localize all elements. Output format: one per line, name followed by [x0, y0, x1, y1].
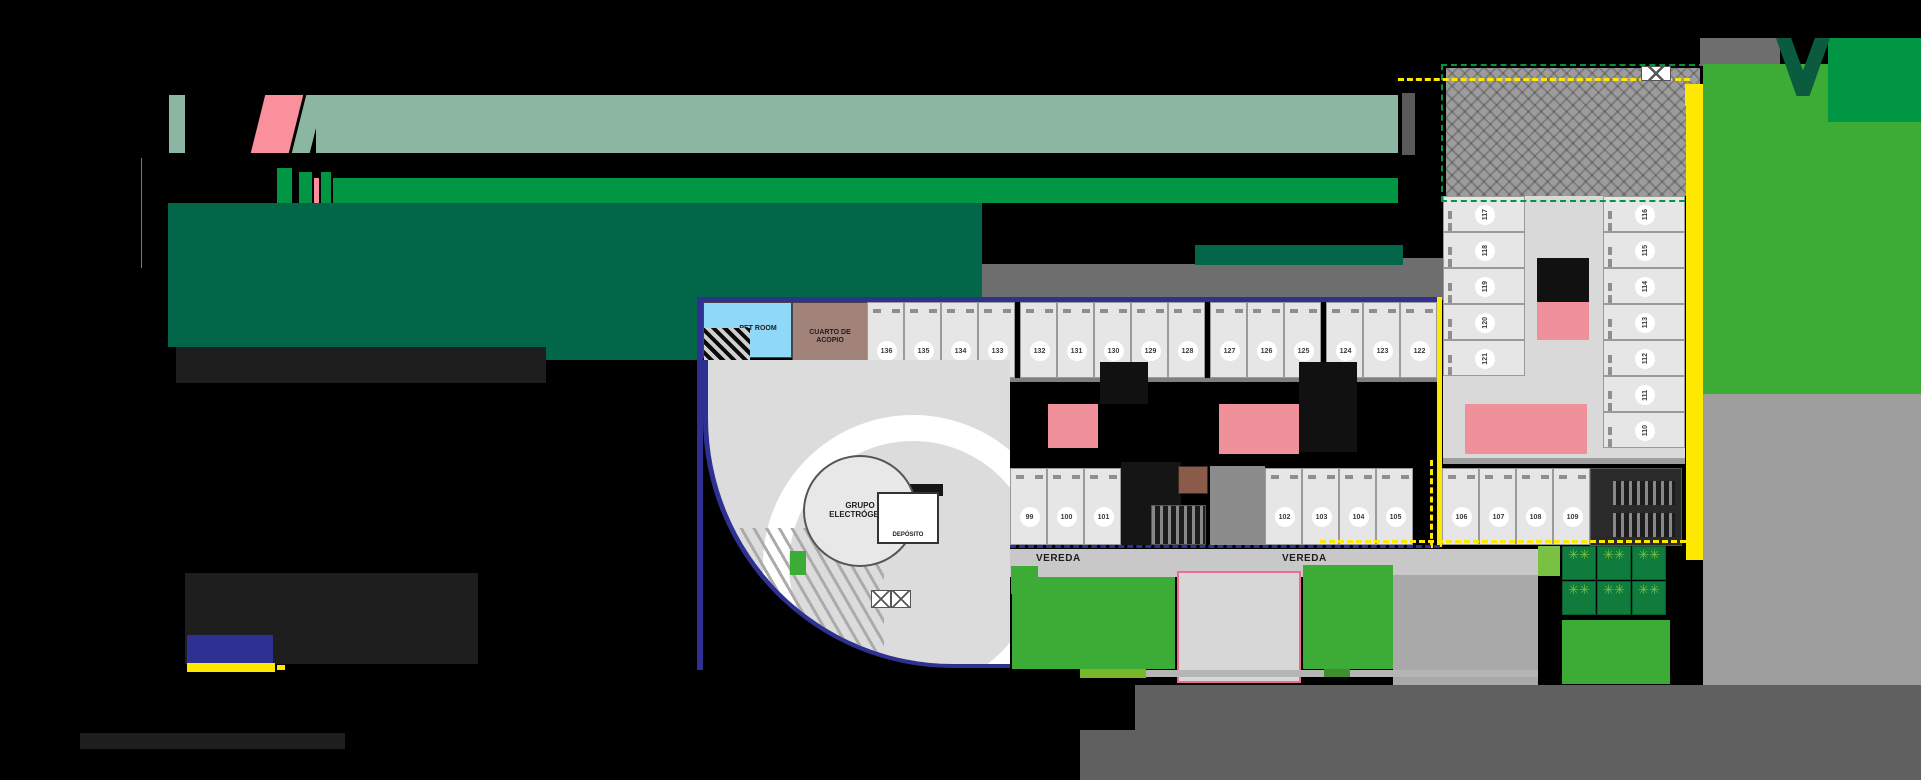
tree-icon: ✳✳: [1603, 547, 1625, 562]
pink-utility-room: [1048, 404, 1098, 448]
stall-number-circle: 105: [1386, 507, 1406, 527]
stall-number-circle: 132: [1030, 341, 1050, 361]
vent-mark: [1448, 367, 1452, 375]
lawn-strip: [1538, 546, 1560, 576]
vent-mark: [1608, 211, 1612, 219]
stall-number-circle: 118: [1475, 241, 1495, 261]
driveway-paving: [1393, 575, 1538, 685]
parking-stall: 101: [1084, 468, 1121, 545]
yellow-boundary-strip: [1686, 106, 1703, 560]
parking-stall: 107: [1479, 468, 1516, 545]
tree-icon: ✳✳: [1568, 582, 1590, 597]
curb-gray: [1350, 670, 1538, 677]
pink-utility-room: [1465, 404, 1587, 454]
vent-mark: [1608, 223, 1612, 231]
stage-divider-dashed: [1430, 460, 1433, 548]
tree-icon: ✳✳: [1638, 547, 1660, 562]
street-road: [1135, 685, 1921, 780]
stall-number: 129: [1145, 348, 1157, 355]
stall-number: 130: [1108, 348, 1120, 355]
vent-mark: [1448, 223, 1452, 231]
deposito-label: DEPÓSITO: [881, 532, 935, 538]
vent-mark: [1559, 475, 1567, 479]
vent-mark: [1541, 475, 1549, 479]
parking-stall: 131: [1057, 302, 1094, 378]
stall-number-circle: 101: [1094, 507, 1114, 527]
floor-plan-sheet: PET ROOM CUARTO DE ACOPIO 13613513413313…: [0, 0, 1921, 780]
stall-number-circle: 136: [877, 341, 897, 361]
bottom-stall-row-west: 99100101: [1010, 468, 1121, 545]
vent-mark: [1109, 475, 1117, 479]
parking-stall: 132: [1020, 302, 1057, 378]
vent-mark: [1053, 475, 1061, 479]
vent-mark: [1271, 475, 1279, 479]
parking-stall: 109: [1553, 468, 1590, 545]
stall-number-circle: 113: [1635, 313, 1655, 333]
legend-underline-nub: [277, 665, 285, 670]
stall-number: 133: [992, 348, 1004, 355]
stall-number: 111: [1642, 390, 1649, 401]
tree-planter: ✳✳: [1597, 581, 1631, 615]
stall-number-circle: 131: [1067, 341, 1087, 361]
curb-green: [1324, 669, 1350, 677]
vent-mark: [1448, 355, 1452, 363]
ramp-yard: GRUPO ELECTRÓGENO DEPÓSITO: [703, 360, 1010, 668]
stair-core: [1100, 362, 1148, 404]
stall-number: 113: [1642, 317, 1649, 328]
stall-number: 106: [1456, 514, 1468, 521]
vent-mark: [1364, 475, 1372, 479]
vent-mark: [1608, 259, 1612, 267]
stair-core: [1299, 362, 1357, 452]
vent-mark: [1448, 247, 1452, 255]
vent-mark: [1072, 475, 1080, 479]
stall-number-circle: 122: [1410, 341, 1430, 361]
vent-mark: [1485, 475, 1493, 479]
vent-mark: [1448, 319, 1452, 327]
parking-stall: 100: [1047, 468, 1084, 545]
banner-sage-band: [316, 95, 1398, 153]
vent-mark: [947, 309, 955, 313]
stall-number-circle: 130: [1104, 341, 1124, 361]
stall-number-circle: 128: [1178, 341, 1198, 361]
stall-number: 123: [1377, 348, 1389, 355]
vent-mark: [1369, 309, 1377, 313]
stall-number-circle: 135: [914, 341, 934, 361]
vent-mark: [966, 309, 974, 313]
vent-mark: [929, 309, 937, 313]
vent-mark: [1119, 309, 1127, 313]
vent-mark: [1003, 309, 1011, 313]
vent-mark: [1448, 211, 1452, 219]
stall-number: 110: [1642, 425, 1649, 436]
vent-mark: [1290, 475, 1298, 479]
stall-number-circle: 123: [1373, 341, 1393, 361]
stall-number-circle: 104: [1349, 507, 1369, 527]
vereda-label-east: VEREDA: [1282, 553, 1327, 564]
vent-mark: [1345, 475, 1353, 479]
vereda-label-west: VEREDA: [1036, 553, 1081, 564]
logo-mark-bar: [169, 95, 185, 153]
vent-mark: [984, 309, 992, 313]
vent-mark: [1608, 283, 1612, 291]
title-dark-green-panel: [168, 203, 982, 299]
tree-planter-grid: ✳✳✳✳✳✳✳✳✳✳✳✳: [1562, 546, 1666, 615]
parking-stall: 112: [1603, 340, 1685, 376]
tree-icon: ✳✳: [1603, 582, 1625, 597]
stall-number-circle: 106: [1452, 507, 1472, 527]
stall-number-circle: 125: [1294, 341, 1314, 361]
neighbor-wall-band: [1700, 38, 1780, 66]
right-block-east-column: 116115114113112111110: [1603, 196, 1685, 448]
stall-number-circle: 102: [1275, 507, 1295, 527]
property-line-yellow: [1320, 540, 1686, 543]
property-line-navy: [1010, 545, 1440, 548]
vent-mark: [1608, 439, 1612, 447]
stall-number: 112: [1642, 353, 1649, 364]
parking-stall: 103: [1302, 468, 1339, 545]
stall-number-circle: 112: [1635, 349, 1655, 369]
pink-utility-room: [1219, 404, 1299, 454]
stall-number-circle: 117: [1475, 205, 1495, 225]
vent-mark: [1137, 309, 1145, 313]
stall-number-circle: 121: [1475, 349, 1495, 369]
vent-mark: [892, 309, 900, 313]
front-lawn-west: [1012, 577, 1175, 669]
vent-mark: [1035, 475, 1043, 479]
stall-number: 132: [1034, 348, 1046, 355]
banner-end-cap: [1402, 93, 1415, 155]
stairwell: [1590, 468, 1682, 546]
service-room-brown: [1178, 466, 1208, 494]
footer-note-block: [80, 733, 345, 749]
stall-number-circle: 119: [1475, 277, 1495, 297]
vent-mark: [1308, 475, 1316, 479]
stall-number-circle: 115: [1635, 241, 1655, 261]
tree-planter: ✳✳: [1562, 546, 1596, 580]
curb-green: [1080, 669, 1146, 678]
parking-stall: 111: [1603, 376, 1685, 412]
vent-mark: [1272, 309, 1280, 313]
service-stairs: [1151, 505, 1206, 545]
stall-number-circle: 120: [1475, 313, 1495, 333]
stall-number: 116: [1642, 209, 1649, 220]
stall-number: 114: [1642, 281, 1649, 292]
stair-treads: [1613, 481, 1675, 505]
vent-mark: [1351, 309, 1359, 313]
vent-mark: [1608, 355, 1612, 363]
planting-pocket: [790, 551, 806, 575]
vent-mark: [1174, 309, 1182, 313]
vent-mark: [1216, 309, 1224, 313]
stall-number: 107: [1493, 514, 1505, 521]
courtyard: [1177, 571, 1301, 683]
north-building-band: [982, 264, 1195, 299]
subtitle-text-block: [176, 347, 546, 383]
vent-mark: [1045, 309, 1053, 313]
margin-rule: [141, 158, 142, 268]
stall-number: 108: [1530, 514, 1542, 521]
tree-icon: ✳✳: [1568, 547, 1590, 562]
right-block-west-column: 117118119120121: [1443, 196, 1525, 376]
stall-number: 119: [1482, 281, 1489, 292]
parking-stall: 123: [1363, 302, 1400, 378]
vent-mark: [1290, 309, 1298, 313]
vent-mark: [1235, 309, 1243, 313]
legend-boundary-chip: [187, 635, 273, 663]
vent-mark: [1448, 295, 1452, 303]
stall-number: 100: [1061, 514, 1073, 521]
parking-stall: 128: [1168, 302, 1205, 378]
right-block-curb: [1443, 458, 1685, 464]
vent-mark: [1608, 367, 1612, 375]
tree-planter: ✳✳: [1632, 581, 1666, 615]
parking-stall: 105: [1376, 468, 1413, 545]
stall-number: 101: [1098, 514, 1110, 521]
stall-number: 99: [1026, 514, 1034, 521]
curb-gray: [1146, 670, 1324, 677]
stall-number: 102: [1279, 514, 1291, 521]
stall-number-circle: 100: [1057, 507, 1077, 527]
vent-mark: [1448, 283, 1452, 291]
parking-stall: 121: [1443, 340, 1525, 376]
stall-number: 109: [1567, 514, 1579, 521]
parking-stall: 127: [1210, 302, 1247, 378]
vent-mark: [1309, 309, 1317, 313]
vent-mark: [1608, 427, 1612, 435]
stall-number-circle: 103: [1312, 507, 1332, 527]
vent-mark: [1063, 309, 1071, 313]
vent-mark: [1016, 475, 1024, 479]
stall-number-circle: 108: [1526, 507, 1546, 527]
vent-mark: [1401, 475, 1409, 479]
parking-stall: 106: [1442, 468, 1479, 545]
vent-mark: [873, 309, 881, 313]
tree-planter: ✳✳: [1632, 546, 1666, 580]
stall-number: 131: [1071, 348, 1083, 355]
vent-mark: [1082, 309, 1090, 313]
vent-mark: [1193, 309, 1201, 313]
parking-stall: 118: [1443, 232, 1525, 268]
tree-planter: ✳✳: [1597, 546, 1631, 580]
vent-mark: [1425, 309, 1433, 313]
stall-number: 105: [1390, 514, 1402, 521]
parking-stall: 126: [1247, 302, 1284, 378]
parking-stall: 119: [1443, 268, 1525, 304]
stall-number: 122: [1414, 348, 1426, 355]
vent-mark: [1608, 247, 1612, 255]
pink-utility-room: [1537, 302, 1589, 340]
entrance-roof-hatch: [1446, 68, 1700, 196]
vent-mark: [1332, 309, 1340, 313]
stall-number-circle: 134: [951, 341, 971, 361]
service-block: [1210, 466, 1265, 545]
stall-number-circle: 99: [1020, 507, 1040, 527]
parking-stall: 115: [1603, 232, 1685, 268]
survey-marker-xbox: [1641, 66, 1671, 81]
vent-mark: [1406, 309, 1414, 313]
parking-stall: 104: [1339, 468, 1376, 545]
corner-paving: [1703, 394, 1921, 690]
vent-mark: [1388, 309, 1396, 313]
vent-mark: [910, 309, 918, 313]
vent-mark: [1327, 475, 1335, 479]
vent-mark: [1522, 475, 1530, 479]
front-lawn-east: [1303, 565, 1393, 669]
stair-core: [1537, 258, 1589, 302]
stall-number-circle: 111: [1635, 385, 1655, 405]
parking-stall: 102: [1265, 468, 1302, 545]
vent-mark: [1090, 475, 1098, 479]
stall-number-circle: 127: [1220, 341, 1240, 361]
tree-planter: ✳✳: [1562, 581, 1596, 615]
parking-stall: 99: [1010, 468, 1047, 545]
deposito-room: DEPÓSITO: [877, 492, 939, 544]
parking-stall: 114: [1603, 268, 1685, 304]
vent-mark: [1382, 475, 1390, 479]
logo-green-square: [1828, 38, 1921, 122]
stall-number: 103: [1316, 514, 1328, 521]
vent-mark: [1026, 309, 1034, 313]
vent-mark: [1578, 475, 1586, 479]
vent-mark: [1504, 475, 1512, 479]
title-green-strip: [333, 178, 1398, 203]
vent-mark: [1448, 331, 1452, 339]
stall-number: 120: [1482, 317, 1489, 329]
stall-number-circle: 107: [1489, 507, 1509, 527]
parking-stall: 108: [1516, 468, 1553, 545]
stall-number: 134: [955, 348, 967, 355]
vent-mark: [1608, 403, 1612, 411]
stall-number: 117: [1482, 209, 1489, 220]
vent-mark: [1448, 475, 1456, 479]
shaft-xbox: [891, 590, 911, 608]
parking-stall: 113: [1603, 304, 1685, 340]
stall-number-circle: 129: [1141, 341, 1161, 361]
title-dark-green-panel: [545, 299, 697, 360]
shaft-xbox: [871, 590, 891, 608]
stall-number-circle: 126: [1257, 341, 1277, 361]
stall-number: 124: [1340, 348, 1352, 355]
bottom-stall-row-east: 106107108109: [1442, 468, 1590, 545]
tree-icon: ✳✳: [1638, 582, 1660, 597]
parking-stall: 110: [1603, 412, 1685, 448]
stall-number: 127: [1224, 348, 1236, 355]
stall-number-circle: 114: [1635, 277, 1655, 297]
stall-number-circle: 110: [1635, 421, 1655, 441]
lawn-below-trees: [1562, 620, 1670, 684]
stall-number: 126: [1261, 348, 1273, 355]
stall-number: 118: [1482, 245, 1489, 256]
stall-number-circle: 133: [988, 341, 1008, 361]
bottom-stall-row-mid: 102103104105: [1265, 468, 1413, 545]
legend-underline: [187, 663, 275, 672]
vent-mark: [1608, 319, 1612, 327]
stall-number: 136: [881, 348, 893, 355]
vent-mark: [1467, 475, 1475, 479]
stall-number-circle: 109: [1563, 507, 1583, 527]
stall-number: 115: [1642, 245, 1649, 256]
vent-mark: [1608, 391, 1612, 399]
vent-mark: [1608, 295, 1612, 303]
vent-mark: [1156, 309, 1164, 313]
stall-number: 128: [1182, 348, 1194, 355]
street-road: [1080, 730, 1137, 780]
vent-mark: [1100, 309, 1108, 313]
vent-mark: [1608, 331, 1612, 339]
parking-stall: 122: [1400, 302, 1437, 378]
stall-number: 135: [918, 348, 930, 355]
stall-number: 125: [1298, 348, 1310, 355]
stall-number-circle: 116: [1635, 205, 1655, 225]
cuarto-de-acopio-label: CUARTO DE ACOPIO: [797, 329, 863, 345]
stair-treads: [1613, 513, 1675, 537]
stall-number-circle: 124: [1336, 341, 1356, 361]
north-planting-strip: [1195, 245, 1403, 265]
vent-mark: [1448, 259, 1452, 267]
vent-mark: [1253, 309, 1261, 313]
stall-number: 121: [1482, 353, 1489, 365]
stall-number: 104: [1353, 514, 1365, 521]
parking-stall: 120: [1443, 304, 1525, 340]
